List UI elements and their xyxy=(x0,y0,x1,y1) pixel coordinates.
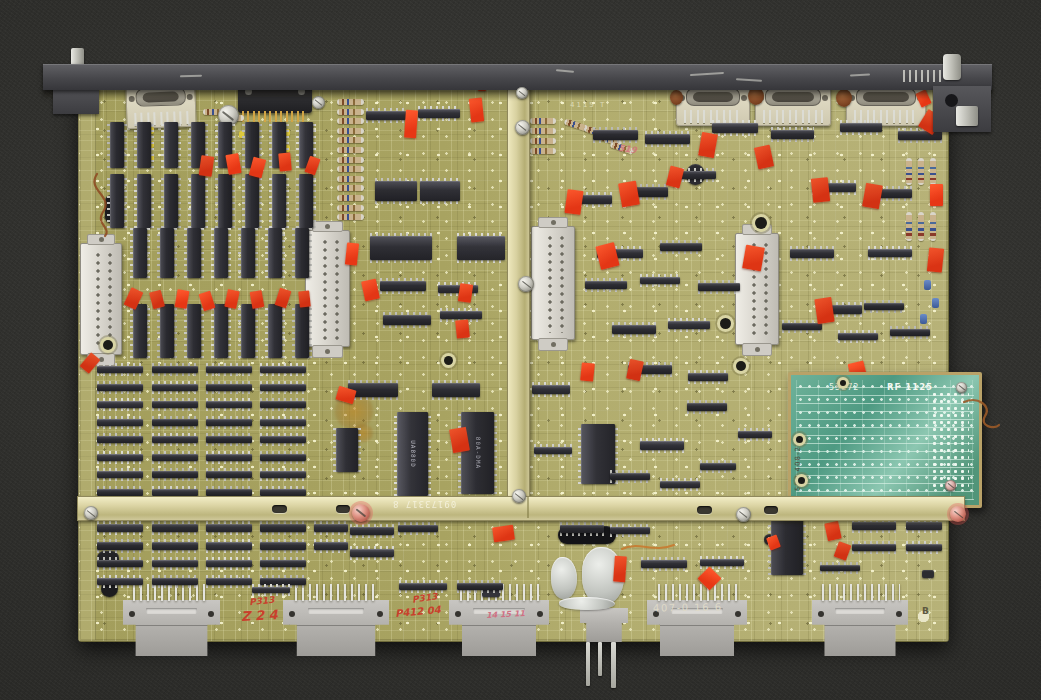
board-print-number: 407-0 16 6 xyxy=(653,601,723,613)
handwritten-mark: P313 xyxy=(249,595,275,608)
markings-layer: 407-0 16 6 B P313 Z 2 4 P313 P412 04 14 … xyxy=(0,0,1041,700)
handwritten-connector-mark: 14 15 11 xyxy=(486,609,525,620)
etched-board-text: 4115 T xyxy=(570,101,606,109)
handwritten-mark: P412 04 xyxy=(395,604,441,619)
board-revision-letter: B xyxy=(922,606,929,616)
handwritten-mark: Z 2 4 xyxy=(241,607,278,624)
handwritten-mark: P313 xyxy=(411,591,438,604)
pink-scribble: 519 xyxy=(617,143,637,156)
pcb-photograph: UA880D80A-DMA 53272 RF 1125 590 408-2L b… xyxy=(0,0,1041,700)
